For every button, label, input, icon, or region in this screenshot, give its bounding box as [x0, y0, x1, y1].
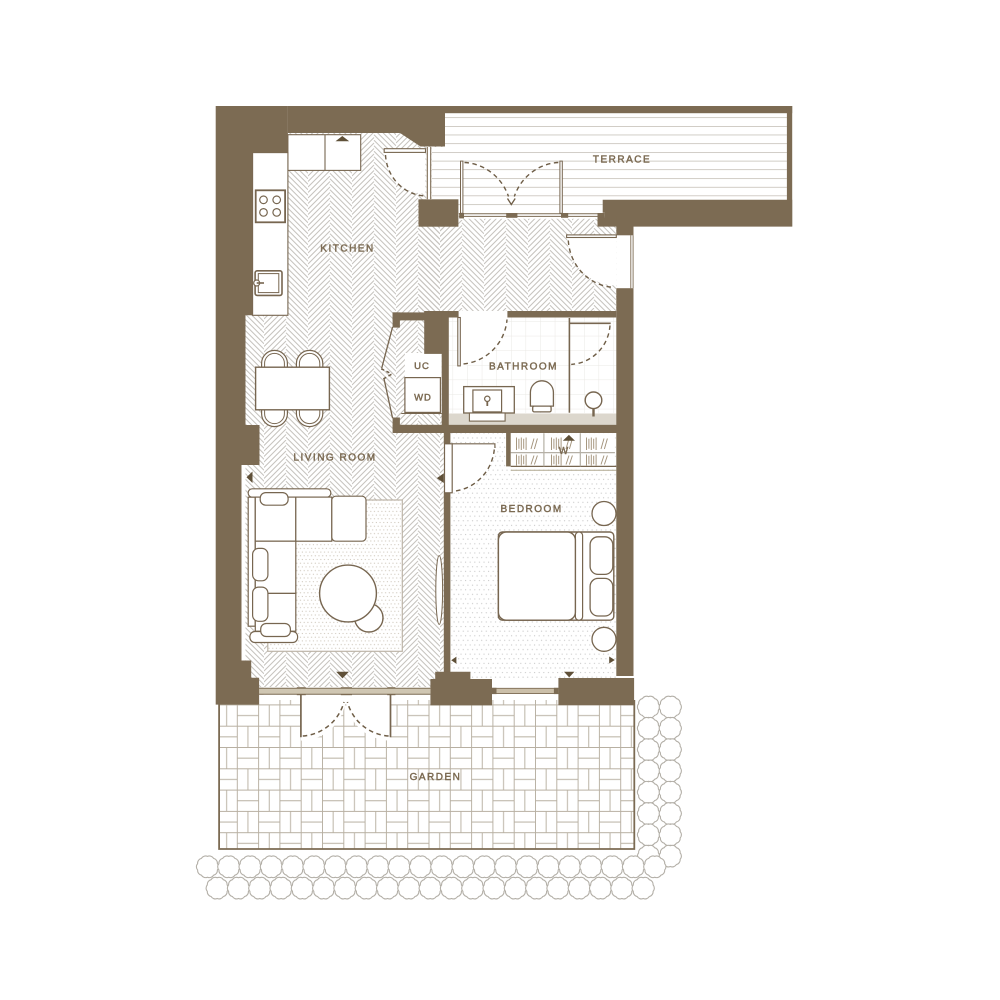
- svg-text:GARDEN: GARDEN: [410, 772, 462, 783]
- svg-text:KITCHEN: KITCHEN: [320, 243, 374, 254]
- svg-text:W: W: [559, 446, 569, 457]
- svg-text:UC: UC: [414, 361, 430, 372]
- svg-text:BEDROOM: BEDROOM: [501, 504, 563, 515]
- svg-text:WD: WD: [414, 392, 432, 403]
- svg-text:LIVING ROOM: LIVING ROOM: [293, 452, 376, 463]
- svg-text:TERRACE: TERRACE: [593, 154, 651, 165]
- svg-text:BATHROOM: BATHROOM: [489, 361, 558, 372]
